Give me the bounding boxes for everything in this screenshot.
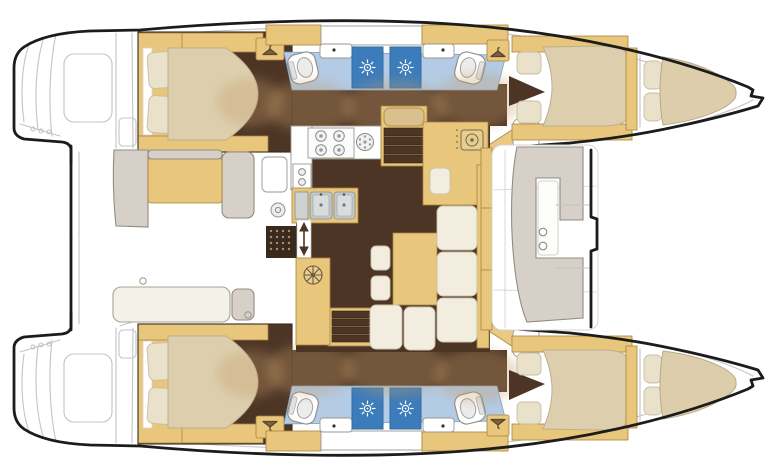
stair-landing xyxy=(384,108,424,126)
cockpit-icebox xyxy=(262,157,287,192)
aft-cabinet xyxy=(296,258,330,345)
stool-cushion xyxy=(371,276,390,300)
stool-cushion xyxy=(371,246,390,270)
front-window-sill xyxy=(481,148,492,330)
bar-sink-icon xyxy=(461,130,483,150)
dinette-table xyxy=(393,233,437,305)
drain xyxy=(342,203,345,206)
cockpit-bench-stbd xyxy=(113,287,230,322)
faucet xyxy=(320,193,323,196)
cockpit-bench-back xyxy=(148,150,222,159)
forward-cockpit xyxy=(492,145,598,330)
cockpit-sink xyxy=(271,203,285,217)
settee-cushion xyxy=(404,307,435,350)
round-burner-icon xyxy=(357,134,374,151)
aft-cockpit xyxy=(113,150,287,322)
stove-top xyxy=(308,128,354,158)
seat-cushion xyxy=(430,168,450,194)
oven-knob xyxy=(299,179,306,186)
faucet xyxy=(343,193,346,196)
settee-cushion xyxy=(437,206,477,250)
saloon xyxy=(266,106,492,352)
starboard-companionway-stairs xyxy=(328,308,376,346)
port-companionway-stairs xyxy=(381,106,427,166)
cup-holder xyxy=(140,278,146,284)
floor-plan-canvas xyxy=(0,0,780,476)
fan-hatch-icon xyxy=(304,266,322,284)
oven-knob xyxy=(299,169,306,176)
galley-sink-unit xyxy=(292,188,358,223)
cockpit-bench-port xyxy=(113,150,148,227)
settee-cushion xyxy=(437,252,477,296)
cockpit-bench-seat xyxy=(222,152,254,218)
cockpit-table xyxy=(538,181,558,255)
settee-cushion xyxy=(370,305,402,349)
cockpit-table xyxy=(148,158,222,203)
drainboard xyxy=(295,192,308,219)
drain xyxy=(319,203,322,206)
catamaran-floor-plan xyxy=(0,0,780,476)
settee-cushion xyxy=(437,298,477,342)
